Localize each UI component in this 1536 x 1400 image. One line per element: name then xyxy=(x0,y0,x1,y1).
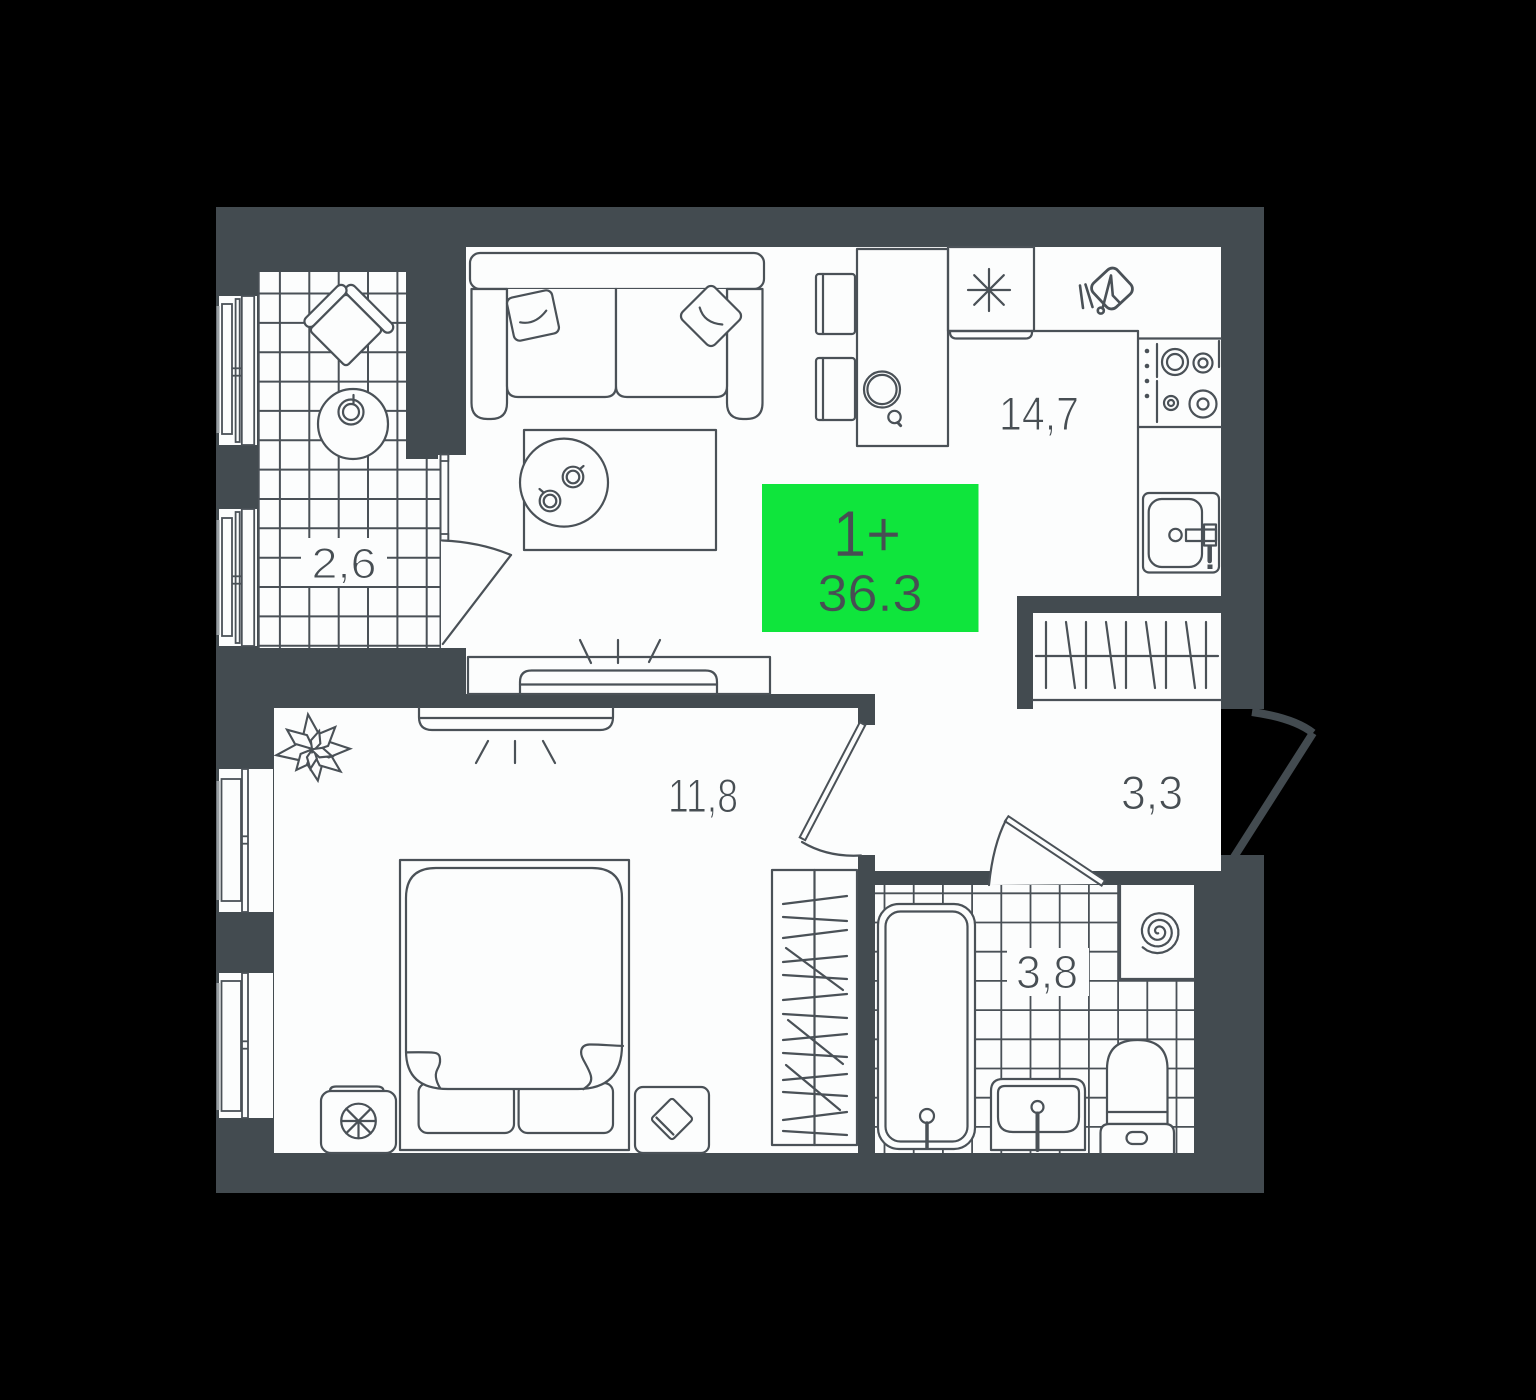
svg-text:11,8: 11,8 xyxy=(668,769,738,822)
svg-text:14,7: 14,7 xyxy=(999,387,1079,440)
svg-text:1+: 1+ xyxy=(833,497,901,570)
svg-text:36.3: 36.3 xyxy=(818,565,923,623)
svg-text:3,8: 3,8 xyxy=(1016,946,1078,998)
svg-text:2,6: 2,6 xyxy=(312,540,377,588)
svg-text:3,3: 3,3 xyxy=(1121,766,1183,819)
